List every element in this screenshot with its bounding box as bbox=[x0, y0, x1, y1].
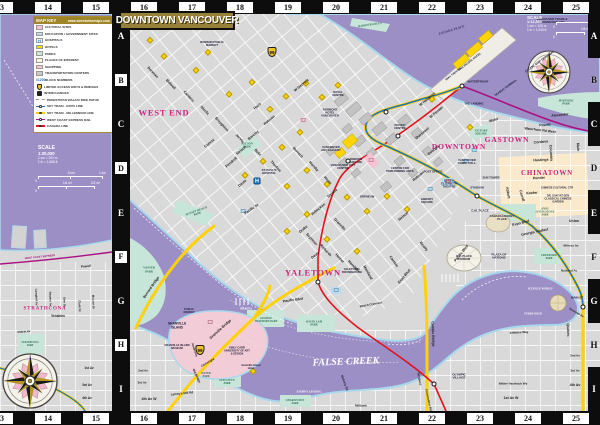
grid-number-13: 13 bbox=[0, 413, 13, 424]
grid-letter-D: D bbox=[115, 162, 127, 174]
grid-number-15: 15 bbox=[83, 413, 109, 424]
station-burrard bbox=[384, 110, 389, 115]
map-label-centre-for-performing-arts: CENTRE FOR PERFORMING ARTS bbox=[386, 167, 414, 173]
map-label-1st-av-w: 1st Av W bbox=[504, 397, 519, 401]
map-label-yaletown: YALETOWN bbox=[285, 268, 341, 277]
grid-border-right: ABCDEFGHI bbox=[588, 14, 600, 411]
scale-imperial: 1 in = 1,040 ft bbox=[527, 28, 546, 32]
map-label-library-square: LIBRARY SQUARE bbox=[418, 198, 436, 204]
grid-number-22: 22 bbox=[419, 2, 445, 13]
inset-pier bbox=[11, 226, 27, 249]
grid-number-23: 23 bbox=[467, 413, 493, 424]
map-label-union: Union bbox=[569, 220, 579, 224]
legend-item: TRANSPORTATION CENTERS bbox=[34, 70, 112, 77]
legend-item: HHOSPITALS bbox=[34, 37, 112, 44]
map-label-ferry-dock: FERRY DOCK bbox=[524, 312, 542, 315]
grid-border-left: ABCDEFGHI bbox=[112, 14, 130, 411]
grid-number-25: 25 bbox=[563, 413, 589, 424]
map-label-robson-public-market: ROBSON PUBLIC MARKET bbox=[199, 41, 225, 47]
grid-number-20: 20 bbox=[323, 2, 349, 13]
legend-header: MAP KEY www.streetwisemaps.com bbox=[34, 17, 112, 24]
transit-line-icon bbox=[36, 119, 45, 121]
map-label-powell: Powell bbox=[539, 124, 551, 129]
map-label-columbia: Columbia bbox=[547, 145, 552, 162]
inset-pier bbox=[34, 230, 47, 249]
education-site-marker bbox=[428, 187, 433, 191]
education-site-marker bbox=[334, 288, 339, 292]
map-label-main: Main bbox=[575, 143, 580, 151]
legend-item: CANADA LINE bbox=[34, 123, 112, 130]
map-label-royal-centre: ROYAL CENTRE bbox=[329, 91, 347, 97]
map-label-cambie-bridge: Cambie Bridge bbox=[430, 321, 435, 346]
map-label-orpheum: ORPHEUM bbox=[360, 195, 374, 198]
map-label-2nd-av: 2nd Av bbox=[138, 369, 148, 372]
grid-number-14: 14 bbox=[35, 413, 61, 424]
map-label-pacific-centre: PACIFIC CENTRE bbox=[391, 124, 409, 130]
grid-number-17: 17 bbox=[179, 413, 205, 424]
grid-number-19: 19 bbox=[275, 413, 301, 424]
grid-number-18: 18 bbox=[227, 413, 253, 424]
grid-letter-G: G bbox=[588, 296, 600, 306]
map-label-4th-av: 4th Av bbox=[82, 397, 92, 401]
map-label-post-office: POST OFFICE bbox=[424, 170, 443, 173]
scale-bar-label: 1/4 mi bbox=[63, 181, 72, 185]
legend-label: HOSPITALS bbox=[45, 38, 62, 42]
map-label-4th-av-w: 4th Av W bbox=[141, 398, 156, 402]
map-label-queen-elizabeth-theatre: QUEEN ELIZABETH THEATRE bbox=[436, 179, 462, 188]
grid-number-21: 21 bbox=[371, 413, 397, 424]
map-label-2nd-av: 2nd Av bbox=[570, 354, 580, 357]
legend-item: SKY TRAIN - EXPO LINE bbox=[34, 103, 112, 110]
map-label-olympic-village: OLYMPIC VILLAGE bbox=[449, 374, 469, 381]
grid-number-23: 23 bbox=[467, 2, 493, 13]
map-label-stadium: STADIUM bbox=[470, 186, 483, 189]
map-label-charleston-park: CHARLESTON PARK bbox=[284, 399, 306, 405]
map-label-sutcliffe-park: SUTCLIFFE PARK bbox=[218, 379, 236, 385]
grid-number-25: 25 bbox=[563, 2, 589, 13]
transit-line-icon bbox=[36, 125, 45, 127]
scale-bar-label: 0 bbox=[35, 179, 37, 183]
map-label-strathcona-park: STRATHCONA PARK bbox=[20, 342, 40, 348]
map-label-keefer: Keefer bbox=[526, 192, 537, 197]
map-label-chinese-cultural-ctr: CHINESE CULTURAL CTR bbox=[541, 188, 573, 191]
scale-bar-km: 0.5 km1 km bbox=[38, 176, 102, 177]
scale-bar-m: 0250 m bbox=[556, 22, 592, 23]
station-olympic-village bbox=[432, 382, 437, 387]
scale-bar-label: .5 km bbox=[67, 171, 75, 175]
legend-label: PARKS bbox=[45, 52, 56, 56]
legend-label: TRANSPORTATION CENTERS bbox=[45, 71, 89, 75]
map-label-david-lam-park: DAVID LAM PARK bbox=[304, 321, 324, 328]
map-label-3rd-av: 3rd Av bbox=[570, 369, 579, 372]
legend-title: MAP KEY bbox=[36, 18, 56, 23]
grid-letter-C: C bbox=[588, 119, 600, 129]
grid-number-24: 24 bbox=[515, 2, 541, 13]
map-label-mclean-dr: McLean Dr bbox=[91, 295, 95, 309]
map-label-4th-av: 4th Av bbox=[570, 384, 581, 388]
interchange-icon bbox=[37, 91, 42, 96]
legend-label: PLACES OF INTEREST bbox=[45, 58, 79, 62]
map-label-public-market: PUBLIC MARKET bbox=[180, 309, 198, 315]
map-label-science-world: SCIENCE WORLD bbox=[528, 287, 553, 290]
main-scale: SCALE 1:12,500 1 cm = 125 m 1 in = 1,040… bbox=[527, 15, 546, 32]
map-label-stamp-s-landing: STAMP'S LANDING bbox=[297, 390, 322, 393]
map-label-hastings: Hastings bbox=[533, 159, 548, 164]
scale-bar-label: 0 bbox=[553, 35, 555, 39]
legend-item: PEDESTRIAN WALKS/ BIKE PATHS bbox=[34, 97, 112, 104]
legend-item: WEST COAST EXPRESS RAIL bbox=[34, 116, 112, 123]
map-key-legend: MAP KEY www.streetwisemaps.com CULTURAL … bbox=[33, 16, 113, 133]
station-main-st bbox=[581, 305, 586, 310]
map-label-vancouver-comm-coll: VANCOUVER COMM. COLL. bbox=[454, 159, 480, 165]
grid-letter-B: B bbox=[588, 75, 600, 85]
streetwise-map-page: DOWNTOWN VANCOUVER MAP KEY www.streetwis… bbox=[0, 0, 600, 425]
grid-letter-E: E bbox=[112, 208, 130, 218]
map-label-marina: MARINA bbox=[240, 307, 252, 310]
grid-letter-G: G bbox=[112, 296, 130, 306]
grid-letter-F: F bbox=[588, 252, 600, 262]
map-title: DOWNTOWN VANCOUVER bbox=[119, 11, 235, 30]
map-label-3rd-av: 3rd Av bbox=[82, 384, 92, 388]
legend-label: SKY TRAIN - MILLENNIUM LINE bbox=[47, 111, 94, 115]
grid-letter-E: E bbox=[588, 208, 600, 218]
legend-item: PARKS bbox=[34, 50, 112, 57]
map-label-national-av: National Av bbox=[561, 269, 577, 272]
station-waterfront bbox=[460, 84, 465, 89]
grid-number-21: 21 bbox=[371, 2, 397, 13]
scale-bar-label: 0 bbox=[35, 189, 37, 193]
map-label-milross-av: Milross Av bbox=[564, 244, 579, 247]
transit-line-icon bbox=[36, 106, 45, 108]
scale-bar-label: 1/2 mi bbox=[91, 181, 100, 185]
map-label-campbell-av: Campbell Av bbox=[34, 289, 38, 306]
map-label-venables: Venables bbox=[51, 315, 65, 319]
legend-item: HOTELS bbox=[34, 44, 112, 51]
cultural-site-marker bbox=[301, 118, 306, 122]
legend-items: CULTURAL SITESEDUCATION / GOVERNMENT SIT… bbox=[34, 24, 112, 130]
grid-border-bottom: 13141516171819202122232425 bbox=[0, 411, 600, 425]
legend-label: EDUCATION / GOVERNMENT SITES bbox=[45, 32, 98, 36]
grid-letter-A: A bbox=[588, 31, 600, 41]
map-label-false-creek: FALSE CREEK bbox=[313, 355, 380, 368]
legend-label: SKY TRAIN - EXPO LINE bbox=[47, 104, 83, 108]
grid-number-19: 19 bbox=[275, 2, 301, 13]
map-label-abbott: Abbott bbox=[504, 187, 510, 199]
scale-bar-mi: 01/8 mi bbox=[556, 32, 584, 33]
map-label-plaza-of-nations: PLAZA OF NATIONS bbox=[487, 254, 511, 261]
grid-letter-H: H bbox=[588, 340, 600, 350]
pedestrian-path-icon bbox=[36, 99, 45, 100]
legend-label: INTERCHANGES bbox=[44, 91, 69, 95]
map-label-gastown: GASTOWN bbox=[485, 136, 530, 144]
grid-number-14: 14 bbox=[35, 2, 61, 13]
map-label-pender: Pender bbox=[533, 177, 545, 182]
station-yaletown-roundhouse bbox=[316, 280, 321, 285]
grid-letter-I: I bbox=[112, 384, 130, 394]
scale-imperial: 1 in = 1,666 ft bbox=[38, 160, 102, 164]
grid-letter-F: F bbox=[115, 251, 127, 263]
map-label-canada-hockey-place: CANADA HOCKEY PLACE bbox=[489, 215, 515, 221]
grid-number-13: 13 bbox=[0, 2, 13, 13]
map-label-dr-sun-yat-sen-classical-chinese-garden: DR. SUN YAT-SEN CLASSICAL CHINESE GARDEN bbox=[542, 196, 574, 205]
legend-label: SHOPPING bbox=[45, 65, 61, 69]
grid-letter-C: C bbox=[112, 119, 130, 129]
map-label-quebec: Quebec bbox=[565, 323, 569, 336]
hospital-icon: H bbox=[36, 38, 43, 43]
legend-item: #1200BLOCK NUMBERS bbox=[34, 77, 112, 84]
map-label-millbank: Millbank bbox=[355, 404, 367, 407]
map-label-chinatown: CHINATOWN bbox=[521, 170, 573, 178]
station-vancouver-city-centre bbox=[346, 159, 351, 164]
legend-item: LIMITED ACCESS HWYS & BRIDGES bbox=[34, 83, 112, 90]
legend-label: CULTURAL SITES bbox=[45, 25, 71, 29]
legend-item: INTERCHANGES bbox=[34, 90, 112, 97]
map-label-main-st: MAIN ST bbox=[571, 296, 583, 299]
map-label-sun-tower: SUN TOWER bbox=[482, 176, 499, 179]
map-label-strathcona: STRATHCONA bbox=[24, 306, 67, 312]
legend-label: HOTELS bbox=[45, 45, 58, 49]
grid-number-22: 22 bbox=[419, 413, 445, 424]
map-label-walter-hardwick-wy: Walter Hardwick Wy bbox=[499, 382, 528, 385]
grid-border-top: 13141516171819202122232425 bbox=[0, 0, 600, 14]
map-label-fairmont-hotel-vancouver: FAIRMONT HOTEL VANCOUVER bbox=[318, 108, 342, 117]
grid-letter-I: I bbox=[588, 384, 600, 394]
grid-number-16: 16 bbox=[131, 413, 157, 424]
grid-number-24: 24 bbox=[515, 413, 541, 424]
grid-letter-A: A bbox=[112, 31, 130, 41]
hospital-icon: H bbox=[254, 178, 261, 185]
grid-number-20: 20 bbox=[323, 413, 349, 424]
legend-item: PLACES OF INTEREST bbox=[34, 57, 112, 64]
map-label-portside-park: PORTSIDE PARK bbox=[557, 100, 575, 107]
map-label-3rd-av: 3rd Av bbox=[137, 381, 146, 384]
map-label-clark-dr: Clark Dr bbox=[77, 300, 81, 312]
grid-letter-B: B bbox=[115, 74, 127, 86]
scale-bar-label: 0 bbox=[553, 25, 555, 29]
cultural-site-marker bbox=[369, 158, 374, 162]
map-label-water-park: WATER PARK bbox=[199, 372, 213, 378]
map-label-g-m-place: G.M. PLACE bbox=[471, 209, 489, 212]
compass-rose-inset bbox=[3, 354, 57, 408]
scale-bar-label: 1 km bbox=[99, 171, 106, 175]
map-label-andy-livingstone-park: ANDY LIVINGSTONE PARK bbox=[532, 207, 558, 216]
map-label-george-wainborn-park: GEORGE WAINBORN PARK bbox=[254, 317, 278, 323]
map-label-vanier-park: VANIER PARK bbox=[141, 266, 157, 273]
inset-scale: SCALE 1:20,000 1 cm = 200 m 1 in = 1,666… bbox=[38, 145, 102, 187]
map-label-glen-dr: Glen Dr bbox=[62, 297, 65, 307]
grid-letter-D: D bbox=[588, 163, 600, 173]
legend-item: EDUCATION / GOVERNMENT SITES bbox=[34, 31, 112, 38]
grid-number-15: 15 bbox=[83, 2, 109, 13]
legend-url: www.streetwisemaps.com bbox=[68, 19, 110, 23]
legend-item: SHOPPING bbox=[34, 64, 112, 71]
legend-item: SKY TRAIN - MILLENNIUM LINE bbox=[34, 110, 112, 117]
map-label-granville-island-museum: GRANVILLE ISLAND MUSEUM bbox=[164, 345, 190, 351]
map-label-creekside-park: CREEKSIDE PARK bbox=[540, 254, 558, 260]
cultural-site-marker bbox=[208, 320, 213, 324]
station-stadium bbox=[475, 194, 480, 199]
legend-label: LIMITED ACCESS HWYS & BRIDGES bbox=[44, 85, 98, 89]
legend-label: BLOCK NUMBERS bbox=[45, 78, 73, 82]
main-scale-bars: 0250 m 01/8 mi bbox=[556, 16, 592, 33]
station-granville bbox=[396, 134, 401, 139]
scale-bar-mi: 01/4 mi1/2 mi bbox=[38, 186, 94, 187]
map-label-granville-island: GRANVILLE ISLAND bbox=[165, 322, 189, 329]
legend-item: CULTURAL SITES bbox=[34, 24, 112, 31]
grid-letter-H: H bbox=[115, 339, 127, 351]
legend-label: CANADA LINE bbox=[47, 124, 68, 128]
map-label-victory-square: VICTORY SQUARE bbox=[472, 130, 490, 137]
map-label-1st-av: 1st Av bbox=[84, 367, 93, 371]
legend-label: PEDESTRIAN WALKS/ BIKE PATHS bbox=[47, 98, 99, 102]
map-label-raymur-av: Raymur Av bbox=[48, 292, 52, 307]
map-label-west-end: WEST END bbox=[139, 108, 190, 117]
map-label-vancouver-art-gallery: VANCOUVER ART GALLERY bbox=[319, 146, 343, 152]
map-label-the-landing: THE LANDING bbox=[464, 102, 483, 105]
map-label-granville-island-hotel: Granville Island Hotel bbox=[240, 365, 262, 371]
transit-line-icon bbox=[36, 112, 45, 114]
map-label-waterfront: WATERFRONT bbox=[468, 80, 489, 83]
highway-shield-icon bbox=[37, 84, 42, 90]
map-label-emily-carr-university-of-art-design: EMILY CARR UNIVERSITY OF ART & DESIGN bbox=[223, 348, 251, 357]
legend-label: WEST COAST EXPRESS RAIL bbox=[47, 118, 91, 122]
map-label-vancouver-city-centre: VANCOUVER CITY CENTRE bbox=[329, 164, 357, 170]
